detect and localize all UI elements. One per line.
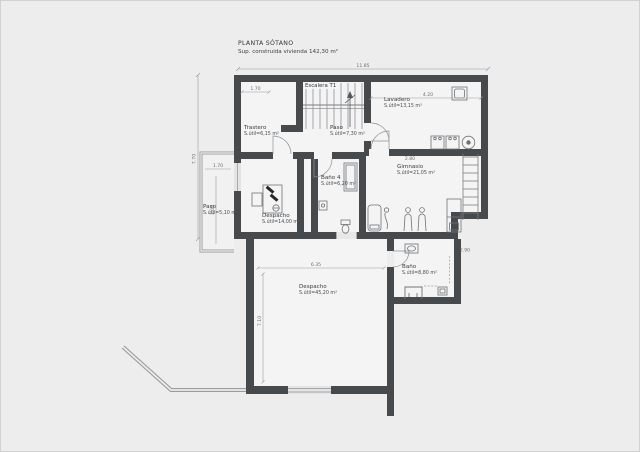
dim-left-height: 7.70: [192, 154, 198, 164]
dim-despacho2-width: 6.35: [311, 262, 321, 268]
page-title: PLANTA SÓTANO: [238, 40, 338, 47]
floor-plan-page: 11.85 7.70 1.70 4.20 2.80 2.90 1.70 3.00…: [0, 0, 640, 452]
room-label-trastero: Trastero S.útil=6,15 m²: [244, 125, 279, 138]
dim-gimnasio-width: 2.80: [405, 156, 415, 162]
exterior-notch: [458, 219, 488, 239]
floor-plan-drawing: 11.85 7.70 1.70 4.20 2.80 2.90 1.70 3.00…: [1, 1, 640, 452]
drawing-title-block: PLANTA SÓTANO Sup. construida vivienda 1…: [238, 40, 338, 55]
room-label-paso-sotano: Paso S.útil=7,30 m²: [330, 125, 365, 138]
room-label-despacho2: Despacho S.útil=45,20 m²: [299, 284, 337, 297]
room-label-paso-exterior: Paso S.útil=5,10 m²: [203, 204, 238, 217]
dim-lavadero-width: 4.20: [423, 92, 433, 98]
dim-trastero-width: 1.70: [250, 86, 260, 92]
room-label-bano4: Baño 4 S.útil=6,20 m²: [321, 175, 356, 188]
dim-paso-ext-width: 1.70: [213, 163, 223, 169]
room-label-despacho1: Despacho S.útil=14,00 m²: [262, 213, 300, 226]
bottom-window: [288, 386, 331, 394]
room-floors: [201, 75, 488, 386]
dim-overall-width: 11.85: [356, 63, 369, 69]
dim-despacho2-height: 7.10: [257, 316, 263, 326]
room-label-bano: Baño S.útil=8,80 m²: [402, 264, 437, 277]
dim-bano-width: 2.90: [460, 248, 470, 254]
page-subtitle: Sup. construida vivienda 142,30 m²: [238, 49, 338, 55]
room-label-gimnasio: Gimnasio S.útil=21,05 m²: [397, 164, 435, 177]
room-label-escalera: Escalera T1: [304, 83, 337, 89]
left-window: [234, 163, 241, 191]
ramp-retaining-wall: [123, 347, 246, 390]
room-label-lavadero: Lavadero S.útil=13,15 m²: [384, 97, 422, 110]
